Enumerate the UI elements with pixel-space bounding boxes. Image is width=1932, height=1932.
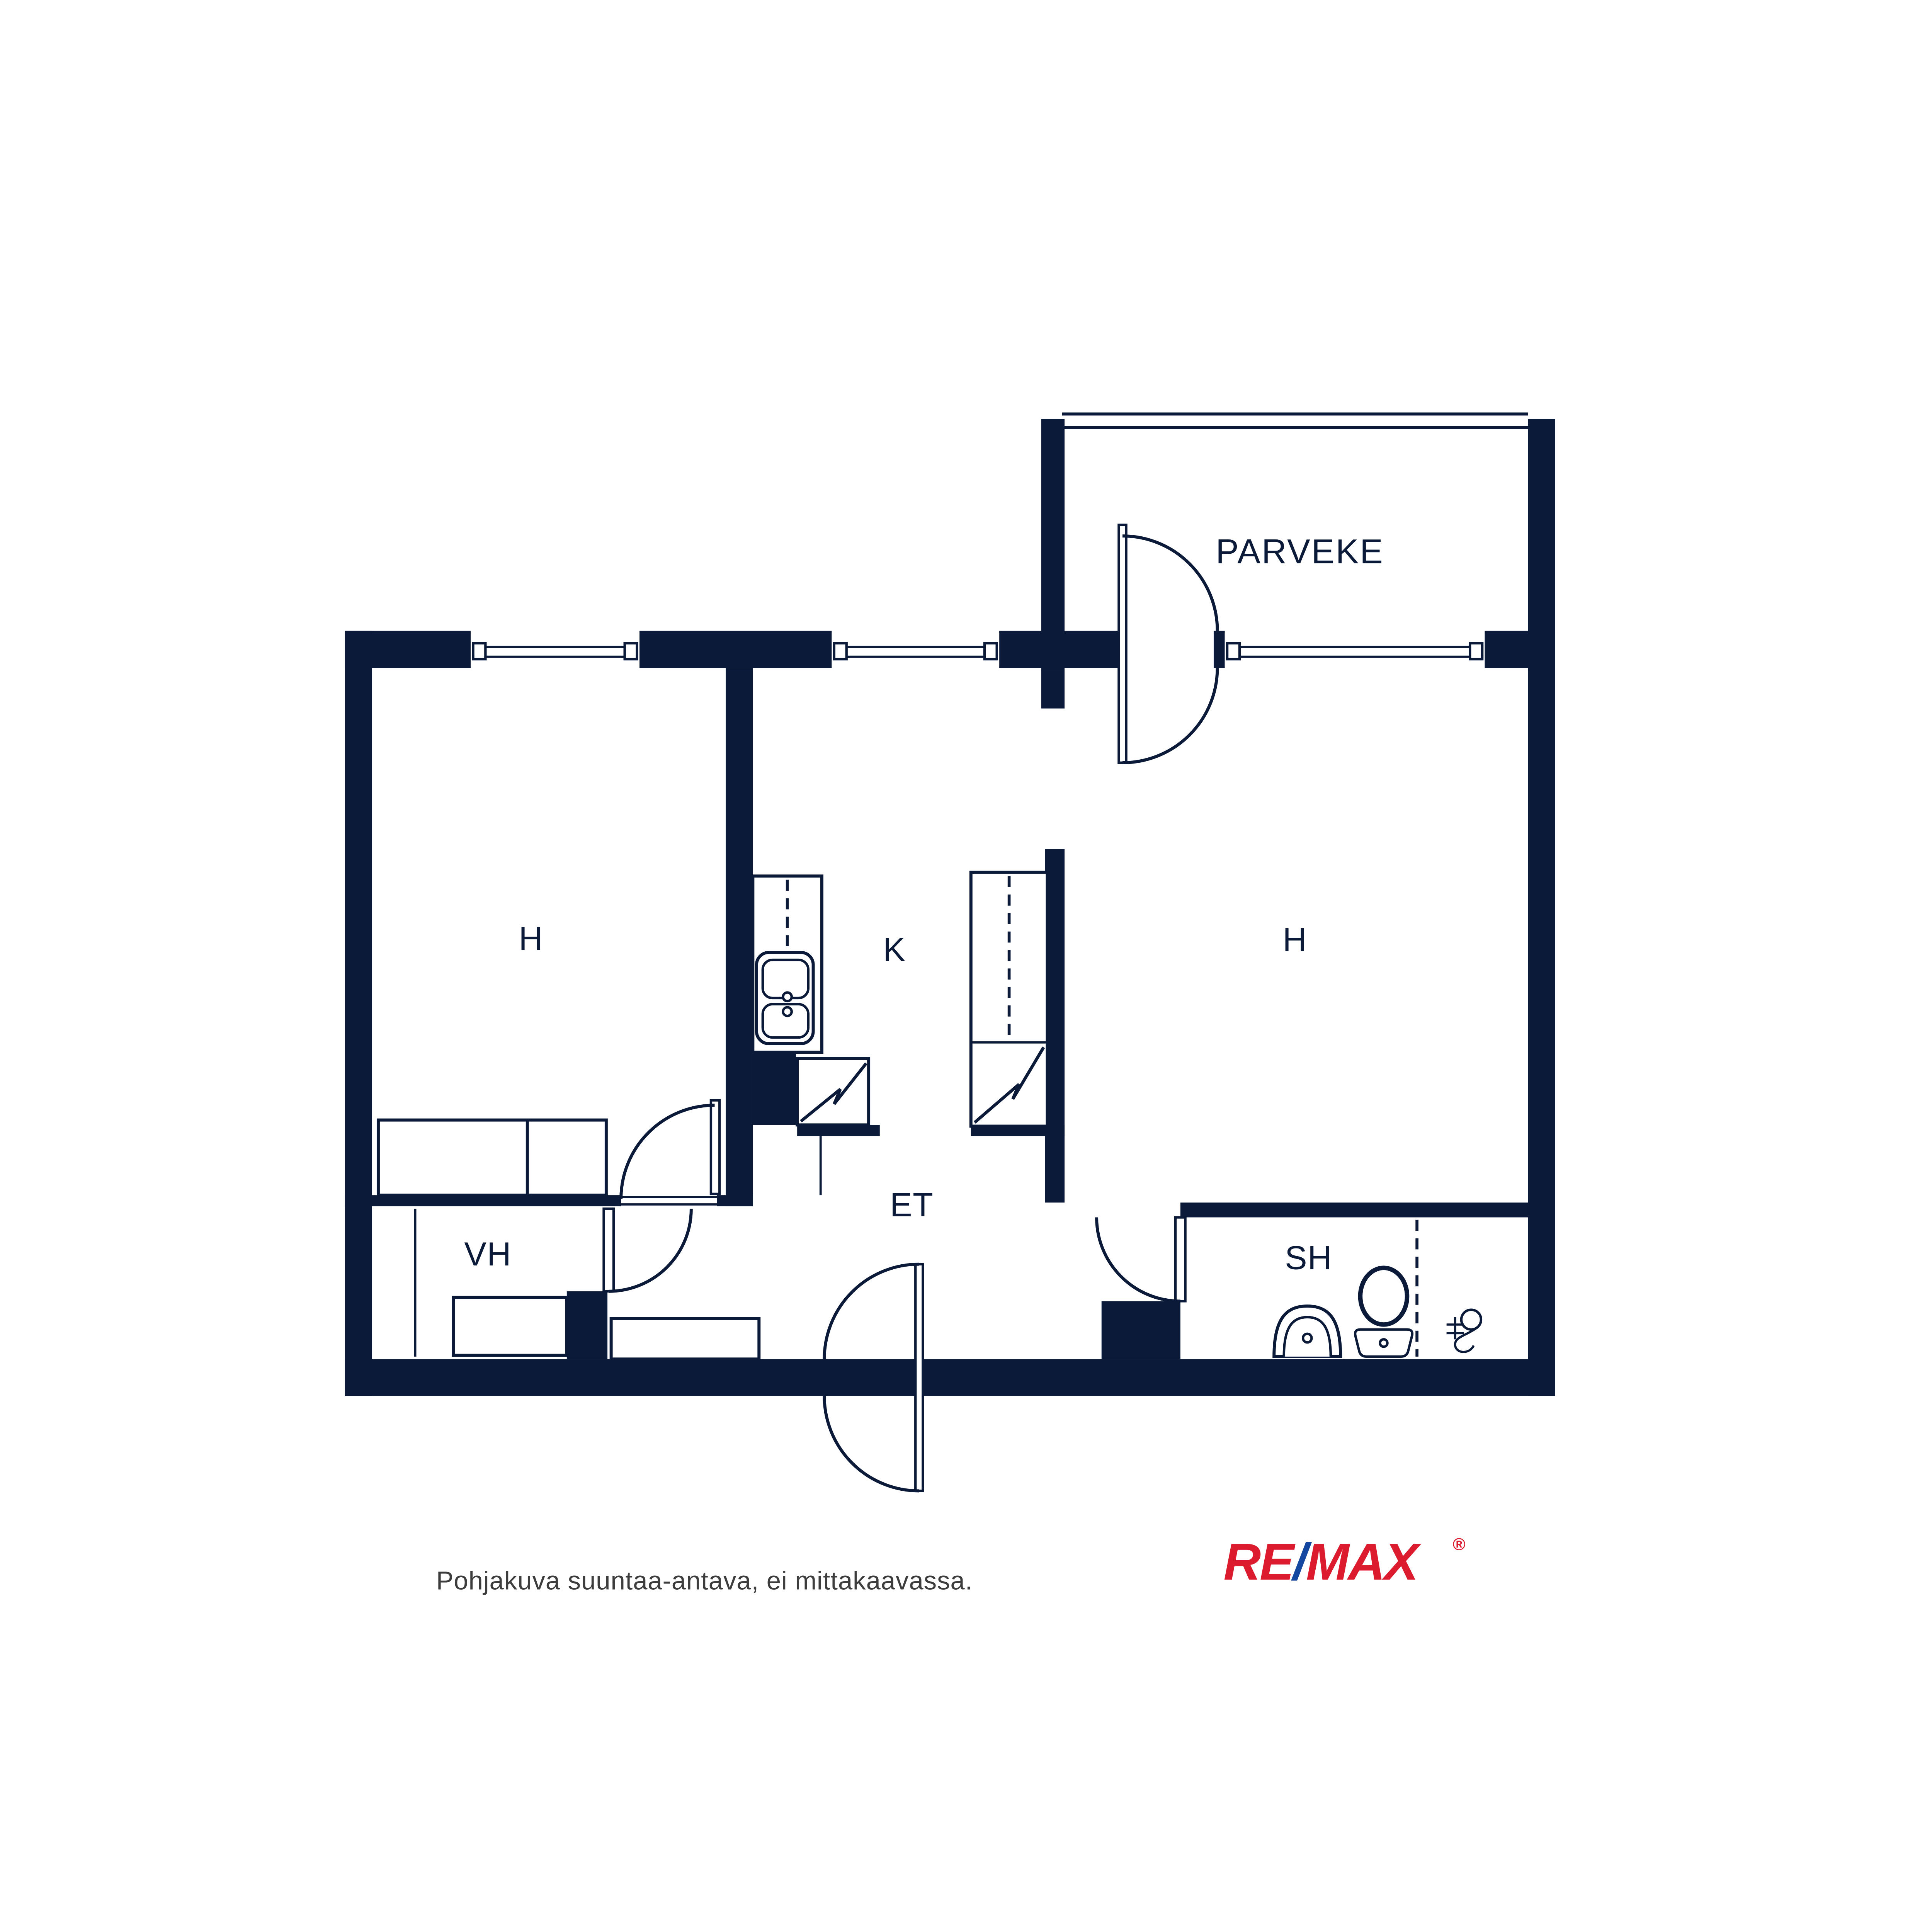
logo-max: MAX bbox=[1306, 1533, 1421, 1591]
wall-left bbox=[345, 631, 372, 1396]
window-jamb bbox=[1470, 643, 1482, 659]
wall-kitchen-bar bbox=[797, 1125, 880, 1136]
label-vh: VH bbox=[464, 1236, 512, 1273]
stove bbox=[797, 1058, 869, 1125]
wall-sh-door-stub bbox=[1102, 1301, 1180, 1359]
sink-tap-dot bbox=[783, 993, 791, 1001]
window-h-left bbox=[471, 633, 639, 667]
door-swing-arc bbox=[609, 1209, 691, 1291]
wall-right-and-balcony-pillar bbox=[1528, 419, 1555, 1396]
toilet-bowl bbox=[1360, 1268, 1407, 1325]
window-jamb bbox=[625, 643, 637, 659]
label-et: ET bbox=[890, 1186, 934, 1223]
window-kitchen bbox=[832, 633, 999, 667]
windows bbox=[471, 633, 1485, 667]
label-sh: SH bbox=[1285, 1239, 1332, 1276]
door-swing-arc bbox=[1122, 668, 1218, 763]
window-h-right bbox=[1225, 633, 1485, 667]
washbasin bbox=[1274, 1306, 1340, 1357]
window-jamb bbox=[1227, 643, 1240, 659]
wall-sh-top bbox=[1180, 1202, 1528, 1217]
toilet bbox=[1355, 1268, 1412, 1357]
disclaimer-text: Pohjakuva suuntaa-antava, ei mittakaavas… bbox=[436, 1566, 973, 1595]
h-left-door bbox=[621, 1100, 719, 1204]
drain-head bbox=[1461, 1310, 1481, 1330]
door-swing-arc bbox=[824, 1396, 919, 1491]
label-h-right: H bbox=[1283, 922, 1308, 959]
sh-door bbox=[1097, 1218, 1185, 1301]
window-opening bbox=[1225, 633, 1485, 667]
door-swing-arc bbox=[621, 1105, 714, 1199]
wall-top-seg1 bbox=[345, 631, 471, 668]
wall-kitchen-hleft bbox=[726, 668, 753, 1206]
door-leaf bbox=[915, 1264, 923, 1491]
balcony-railing bbox=[1062, 414, 1528, 427]
door-leaf bbox=[1175, 1218, 1185, 1301]
door-swing-arc bbox=[824, 1264, 919, 1359]
door-leaf bbox=[604, 1209, 614, 1291]
bed-outline bbox=[378, 1120, 606, 1196]
logo-re: RE bbox=[1223, 1533, 1296, 1591]
floor-plan-page: PARVEKE H K H ET VH SH Pohjakuva suuntaa… bbox=[0, 0, 1932, 1932]
drain-curl bbox=[1455, 1328, 1476, 1352]
vh-door bbox=[604, 1209, 691, 1291]
window-jamb bbox=[473, 643, 485, 659]
label-parveke: PARVEKE bbox=[1216, 532, 1384, 570]
wall-vh-door-stub bbox=[567, 1291, 607, 1359]
door-leaf bbox=[711, 1100, 719, 1194]
window-opening bbox=[832, 633, 999, 667]
remax-logo: RE/MAX bbox=[1223, 1533, 1421, 1591]
window-jamb bbox=[985, 643, 997, 659]
label-kitchen: K bbox=[883, 931, 906, 968]
wall-below-bed bbox=[345, 1195, 621, 1206]
bed bbox=[378, 1120, 606, 1196]
window-jamb bbox=[834, 643, 847, 659]
footer: Pohjakuva suuntaa-antava, ei mittakaavas… bbox=[436, 1533, 1466, 1595]
window-opening bbox=[471, 633, 639, 667]
hallway-cabinet bbox=[611, 1318, 759, 1359]
wall-below-bed-jamb bbox=[717, 1195, 753, 1206]
sink-tap-dot bbox=[783, 1007, 791, 1016]
washbasin-tap-dot bbox=[1303, 1334, 1311, 1342]
wall-top-seg4 bbox=[1214, 631, 1225, 668]
tall-cabinet bbox=[971, 872, 1048, 1126]
door-leaf bbox=[1119, 525, 1126, 762]
logo-registered-mark: ® bbox=[1453, 1535, 1466, 1554]
label-h-left: H bbox=[519, 920, 543, 957]
floor-drain bbox=[1447, 1310, 1481, 1352]
wall-bottom bbox=[345, 1359, 1555, 1396]
cabinet-outline bbox=[971, 872, 1048, 1126]
vh-shelf bbox=[453, 1298, 566, 1355]
balcony-pillar-left bbox=[1041, 419, 1065, 668]
wall-top-seg5 bbox=[1485, 631, 1555, 668]
wall-top-seg2 bbox=[639, 631, 832, 668]
door-swing-arc bbox=[1122, 536, 1218, 631]
wall-kitchen-block bbox=[753, 1052, 796, 1125]
floor-plan-svg: PARVEKE H K H ET VH SH Pohjakuva suuntaa… bbox=[0, 0, 1932, 1932]
door-swing-arc bbox=[1097, 1218, 1180, 1301]
balcony-door-jamb bbox=[1041, 668, 1065, 708]
balcony-door bbox=[1119, 525, 1217, 762]
toilet-dot bbox=[1380, 1339, 1387, 1347]
